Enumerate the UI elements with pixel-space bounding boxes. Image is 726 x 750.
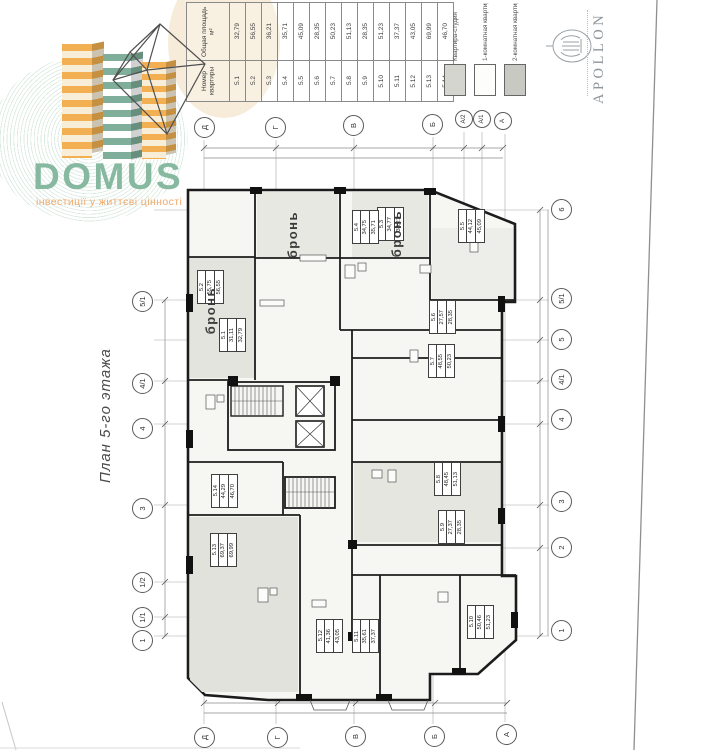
reserved-label: бронь: [389, 210, 404, 257]
table-column: 43,055.12: [405, 3, 421, 101]
unit-total-area: 28,35: [457, 520, 463, 535]
unit-living-area: 44,29: [221, 484, 227, 499]
apartment-number: 5.7: [330, 76, 337, 85]
area-value: 69,99: [426, 23, 433, 39]
unit-info-5-7: 5.748,5550,23: [428, 344, 455, 378]
legend-swatch-one-room: [474, 64, 496, 96]
table-column: 45,095.5: [293, 3, 309, 101]
apollon-logo: APOLLON: [545, 0, 617, 125]
axis-bubble-top: Г: [265, 117, 286, 138]
unit-number: 5.14: [213, 485, 219, 496]
apartment-number: 5.9: [362, 76, 369, 85]
axis-bubble-top: В: [343, 115, 364, 136]
unit-number: 5.13: [212, 544, 218, 555]
table-column: 51,135.8: [341, 3, 357, 101]
axis-bubble-right: 5: [551, 329, 572, 350]
apartment-number: 5.11: [394, 75, 401, 87]
unit-number: 5.11: [354, 631, 360, 642]
area-value: 51,23: [378, 23, 385, 39]
axis-bubble-top: А/2: [455, 110, 473, 128]
area-value: 51,13: [346, 23, 353, 39]
axis-bubble-bottom: В: [345, 726, 366, 747]
apartment-number: 5.2: [250, 76, 257, 85]
unit-info-5-11: 5.1135,6137,37: [352, 619, 379, 653]
table-column: 28,355.9: [357, 3, 373, 101]
axis-bubble-bottom: Д: [194, 727, 215, 748]
scan-edge-artifact: [2, 702, 16, 750]
tower-front: [62, 44, 92, 158]
unit-total-area: 51,23: [486, 615, 492, 630]
unit-info-5-9: 5.927,3728,35: [438, 510, 465, 544]
area-value: 28,35: [314, 23, 321, 39]
unit-info-5-6: 5.627,5728,35: [429, 300, 456, 334]
unit-info-5-12: 5.1241,3643,05: [316, 619, 343, 653]
axis-bubble-top: А: [494, 112, 512, 130]
unit-total-area: 32,79: [238, 328, 244, 343]
reserved-label: бронь: [203, 287, 218, 334]
axis-bubble-top: А/1: [473, 110, 491, 128]
area-value: 50,23: [330, 23, 337, 39]
bay-windows: [310, 700, 428, 710]
legend-label: 1-комнатная квартира: [482, 3, 489, 61]
unit-living-area: 50,46: [477, 615, 483, 630]
axis-bubble-left: 3: [132, 498, 153, 519]
legend-item-one-room: 1-комнатная квартира: [474, 3, 496, 96]
sheet-title: План 5-го этажа: [97, 298, 114, 483]
unit-number: 5.5: [460, 222, 466, 230]
unit-number: 5.4: [354, 223, 360, 231]
domus-logo-text: DOMUS: [33, 158, 183, 195]
unit-number: 5.9: [440, 523, 446, 531]
axis-bubble-bottom: А: [496, 724, 517, 745]
table-column: 50,235.7: [325, 3, 341, 101]
unit-living-area: 27,37: [448, 520, 454, 535]
unit-number: 5.6: [431, 313, 437, 321]
unit-number: 5.10: [469, 616, 475, 627]
tower-illustration-left: [62, 44, 104, 158]
unit-living-area: 31,11: [229, 328, 235, 342]
unit-living-area: 27,57: [439, 310, 445, 325]
axis-bubble-bottom: Г: [267, 727, 288, 748]
unit-living-area: 44,12: [468, 219, 474, 234]
legend-item-two-room: 2-комнатная квартира: [504, 3, 526, 96]
axis-bubble-right: 4/1: [551, 369, 572, 390]
unit-number: 5.1: [221, 331, 227, 339]
table-column: 51,235.10: [373, 3, 389, 101]
unit-total-area: 51,13: [453, 472, 459, 487]
axis-bubble-left: 5/1: [132, 291, 153, 312]
axis-bubble-right: 5/1: [551, 288, 572, 309]
area-value: 36,21: [266, 23, 273, 39]
elevator-shafts: [296, 386, 324, 447]
area-value: 37,37: [394, 23, 401, 39]
axis-bubble-left: 1/1: [132, 607, 153, 628]
axis-bubble-left: 1: [132, 630, 153, 651]
unit-total-area: 43,05: [335, 629, 341, 644]
apartment-area-table: Общая площадь м² Номер квартиры 32,795.1…: [186, 2, 454, 102]
unit-info-5-13: 5.1369,3769,99: [210, 533, 237, 567]
area-value: 45,09: [298, 23, 305, 39]
area-value: 35,71: [282, 23, 289, 39]
drawing-sheet: DOMUS інвестиції у життєві цінності Обща…: [0, 0, 726, 750]
unit-total-area: 46,70: [230, 484, 236, 499]
unit-living-area: 48,55: [438, 354, 444, 369]
axis-bubble-right: 4: [551, 409, 572, 430]
table-column: 32,795.1: [229, 3, 245, 101]
apartment-number: 5.10: [378, 75, 385, 88]
apartment-number: 5.12: [410, 75, 417, 88]
unit-total-area: 28,35: [448, 310, 454, 325]
apartment-number: 5.4: [282, 76, 289, 85]
unit-total-area: 45,09: [477, 219, 483, 234]
unit-number: 5.3: [379, 220, 385, 228]
unit-living-area: 69,37: [220, 543, 226, 558]
legend: Квартира-студия 1-комнатная квартира 2-к…: [444, 3, 526, 96]
legend-label: Квартира-студия: [452, 3, 459, 61]
legend-swatch-two-room: [504, 64, 526, 96]
axis-bubble-bottom: Б: [424, 726, 445, 747]
table-column: 35,715.4: [277, 3, 293, 101]
apollon-subtitle: [587, 10, 588, 96]
apartment-number: 5.3: [266, 76, 273, 85]
area-value: 32,79: [234, 23, 241, 39]
apartment-number: 5.6: [314, 76, 321, 85]
axis-bubble-left: 4/1: [132, 373, 153, 394]
axis-bubble-right: 3: [551, 491, 572, 512]
apartment-number: 5.8: [346, 76, 353, 85]
unit-info-5-14: 5.1444,2946,70: [211, 474, 238, 508]
legend-item-studio: Квартира-студия: [444, 3, 466, 96]
unit-living-area: 41,36: [326, 629, 332, 644]
table-column: 56,555.2: [245, 3, 261, 101]
unit-info-5-5: 5.544,1245,09: [458, 209, 485, 243]
apollon-name: APOLLON: [591, 0, 608, 104]
domus-tagline: інвестиції у життєві цінності: [36, 196, 182, 208]
axis-bubble-left: 1/2: [132, 572, 153, 593]
unit-total-area: 69,99: [229, 543, 235, 558]
area-value: 43,05: [410, 23, 417, 39]
wireframe-polyhedron-icon: [105, 22, 210, 140]
unit-living-area: 35,61: [362, 629, 368, 644]
area-value: 56,55: [250, 23, 257, 39]
unit-info-5-1: 5.131,1132,79: [219, 318, 246, 352]
unit-total-area: 35,71: [371, 220, 377, 235]
table-column: 69,995.13: [421, 3, 437, 101]
legend-swatch-studio: [444, 64, 466, 96]
unit-living-area: 34,75: [362, 220, 368, 235]
reserved-label: бронь: [285, 211, 300, 258]
unit-total-area: 37,37: [371, 629, 377, 644]
unit-number: 5.12: [318, 630, 324, 641]
area-value: 28,35: [362, 23, 369, 39]
unit-info-5-10: 5.1050,4651,23: [467, 605, 494, 639]
axis-bubble-right: 6: [551, 199, 572, 220]
unit-number: 5.7: [430, 357, 436, 365]
table-column: 28,355.6: [309, 3, 325, 101]
unit-total-area: 50,23: [447, 354, 453, 369]
table-column: 36,215.3: [261, 3, 277, 101]
apartment-number: 5.1: [234, 76, 241, 85]
axis-bubble-right: 1: [551, 620, 572, 641]
axis-bubble-left: 4: [132, 418, 153, 439]
unit-number: 5.8: [436, 475, 442, 483]
axis-bubble-right: 2: [551, 537, 572, 558]
table-column: 37,375.11: [389, 3, 405, 101]
sheet-right-border: [634, 0, 657, 750]
axis-bubble-top: Б: [422, 114, 443, 135]
unit-info-5-4: 5.434,7535,71: [352, 210, 379, 244]
apartment-number: 5.13: [426, 75, 433, 88]
unit-living-area: 48,45: [444, 472, 450, 487]
legend-label: 2-комнатная квартира: [512, 3, 519, 61]
unit-info-5-8: 5.848,4551,13: [434, 462, 461, 496]
lyre-icon: [545, 24, 593, 68]
apartment-number: 5.5: [298, 76, 305, 85]
